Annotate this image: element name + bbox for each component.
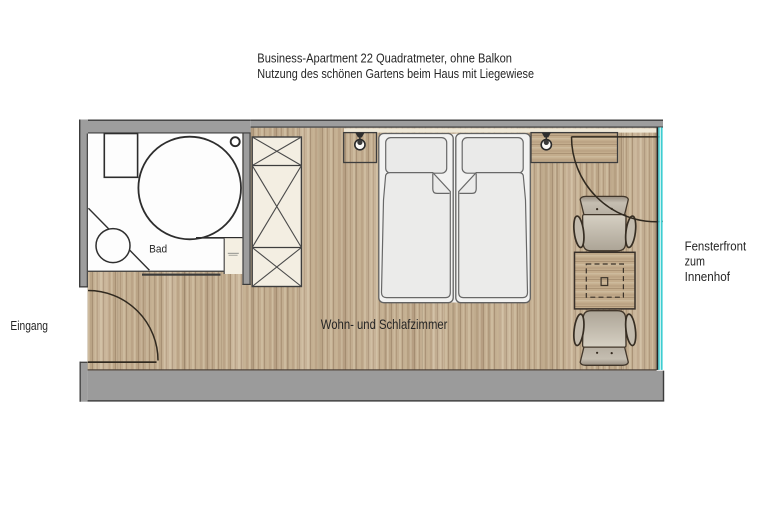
svg-text:Business-Apartment 22 Quadratm: Business-Apartment 22 Quadratmeter, ohne… xyxy=(257,51,512,66)
svg-text:Bad: Bad xyxy=(149,244,167,256)
svg-text:Eingang: Eingang xyxy=(10,318,48,333)
svg-text:Nutzung des schönen Gartens be: Nutzung des schönen Gartens beim Haus mi… xyxy=(257,66,534,81)
svg-text:Wohn- und Schlafzimmer: Wohn- und Schlafzimmer xyxy=(321,317,448,332)
svg-text:Innenhof: Innenhof xyxy=(685,269,731,284)
svg-text:Fensterfront: Fensterfront xyxy=(685,239,747,254)
svg-text:zum: zum xyxy=(685,253,705,268)
